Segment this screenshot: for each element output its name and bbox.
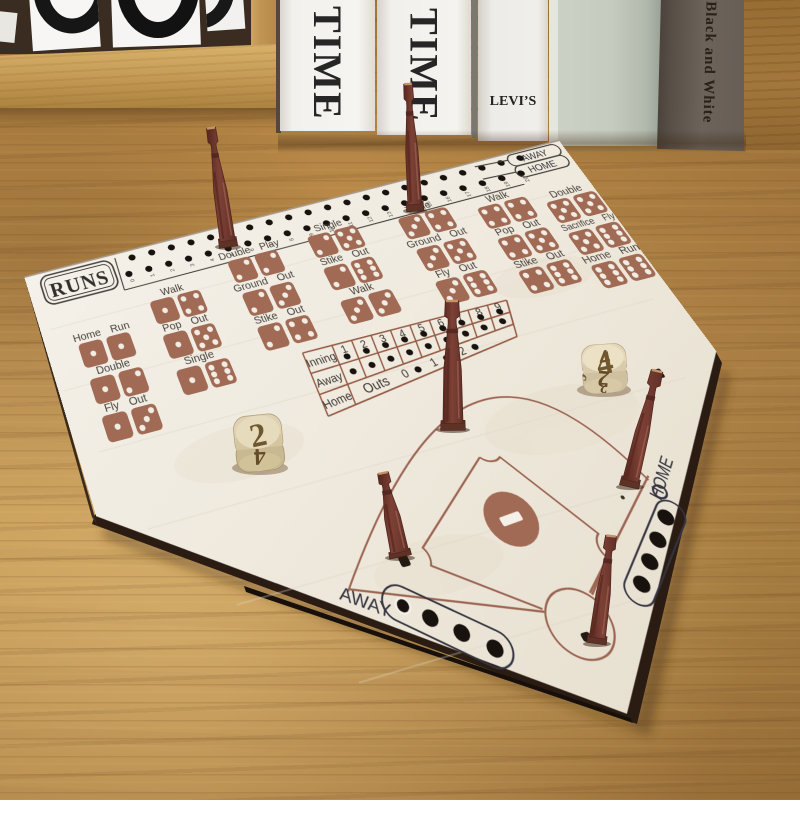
- svg-text:6: 6: [572, 373, 589, 382]
- svg-text:2: 2: [596, 365, 610, 392]
- svg-text:4: 4: [253, 443, 266, 469]
